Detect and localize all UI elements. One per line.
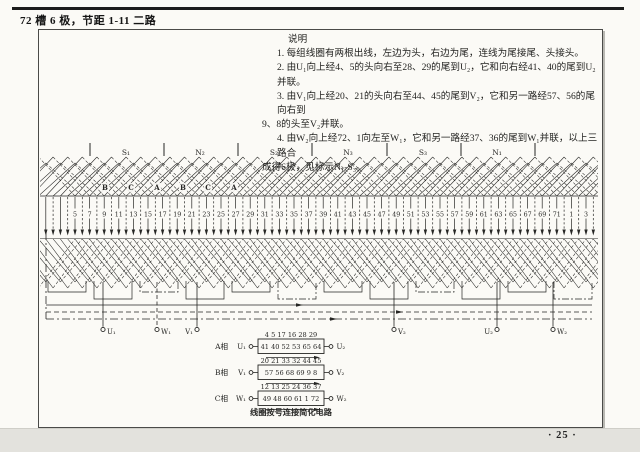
svg-text:U₂: U₂ [484,328,493,336]
svg-text:S₂: S₂ [270,148,278,157]
terminals: U₁W₁V₁V₂U₂W₂ [101,282,567,336]
top-end-turns [2,157,640,196]
svg-text:W₂: W₂ [337,395,347,403]
svg-text:15: 15 [144,212,152,219]
svg-text:W₁: W₁ [236,395,246,403]
svg-text:N₁: N₁ [492,148,502,157]
page-number: · 25 · [548,430,577,441]
svg-text:11: 11 [115,212,123,219]
svg-text:59: 59 [465,212,473,219]
svg-text:V₂: V₂ [397,328,406,336]
svg-text:17: 17 [159,212,167,219]
bus-lines [46,232,592,321]
svg-text:A: A [153,183,160,192]
svg-text:4 5 17 16 28 29: 4 5 17 16 28 29 [265,331,317,339]
svg-text:45: 45 [363,212,371,219]
svg-text:57 56 68 69 9 8: 57 56 68 69 9 8 [265,369,317,377]
svg-text:23: 23 [202,212,210,219]
svg-text:63: 63 [494,212,502,219]
svg-text:13: 13 [129,212,137,219]
svg-text:49 48 60 61 1 72: 49 48 60 61 1 72 [263,395,320,403]
svg-text:49: 49 [392,212,400,219]
svg-text:21: 21 [188,212,196,219]
svg-text:3: 3 [584,212,588,219]
svg-text:W₁: W₁ [161,328,171,336]
svg-text:5: 5 [73,212,77,219]
svg-text:12 13 25 24 36 37: 12 13 25 24 36 37 [261,383,322,391]
svg-text:S₁: S₁ [122,148,130,157]
svg-text:57: 57 [451,212,459,219]
svg-text:N₃: N₃ [343,148,353,157]
svg-text:33: 33 [275,212,283,219]
svg-text:B: B [102,183,108,192]
svg-text:V₂: V₂ [336,369,345,377]
svg-text:61: 61 [480,212,488,219]
svg-text:37: 37 [305,212,313,219]
svg-text:55: 55 [436,212,444,219]
svg-text:1: 1 [569,212,573,219]
scanned-page: 72 槽 6 极，节距 1-11 二路 说明 1. 每组线圈有两根出线，左边为头… [0,0,640,452]
svg-text:69: 69 [538,212,546,219]
svg-text:41 40 52 53 65 64: 41 40 52 53 65 64 [261,343,322,351]
svg-text:19: 19 [173,212,181,219]
svg-text:51: 51 [407,212,415,219]
bottom-end-turns [2,239,640,288]
svg-text:线圈按号连接简化电路: 线圈按号连接简化电路 [250,407,333,417]
bottom-margin-band [0,428,640,452]
svg-text:W₂: W₂ [557,328,567,336]
svg-text:31: 31 [261,212,269,219]
svg-text:29: 29 [246,212,254,219]
svg-text:U₁: U₁ [237,343,246,351]
svg-text:C相: C相 [215,393,228,403]
pole-labels: S₁N₂S₂N₃S₃N₁ [90,143,535,157]
svg-text:43: 43 [348,212,356,219]
svg-text:7: 7 [88,212,92,219]
svg-text:53: 53 [421,212,429,219]
svg-text:A: A [230,183,237,192]
svg-text:U₂: U₂ [337,343,346,351]
svg-text:V₁: V₁ [237,369,246,377]
svg-text:41: 41 [334,212,342,219]
svg-text:V₁: V₁ [184,328,193,336]
svg-text:N₂: N₂ [195,148,205,157]
svg-text:C: C [205,183,211,192]
svg-text:39: 39 [319,212,327,219]
winding-diagram: S₁N₂S₂N₃S₃N₁BCABCA5791113151719212325272… [0,0,640,452]
svg-text:B: B [180,183,186,192]
svg-text:27: 27 [232,212,240,219]
svg-text:S₃: S₃ [419,148,427,157]
svg-text:A相: A相 [214,341,228,351]
svg-text:71: 71 [553,212,561,219]
svg-text:9: 9 [102,212,106,219]
svg-text:C: C [128,183,134,192]
svg-text:25: 25 [217,212,225,219]
svg-text:67: 67 [524,212,532,219]
svg-text:47: 47 [378,212,386,219]
svg-text:35: 35 [290,212,298,219]
svg-text:B相: B相 [215,367,228,377]
svg-text:20 21 33 32 44 45: 20 21 33 32 44 45 [261,357,322,365]
svg-text:65: 65 [509,212,517,219]
svg-text:U₁: U₁ [107,328,116,336]
simplified-circuit: A相U₁4 5 17 16 28 2941 40 52 53 65 64U₂B相… [214,331,347,417]
